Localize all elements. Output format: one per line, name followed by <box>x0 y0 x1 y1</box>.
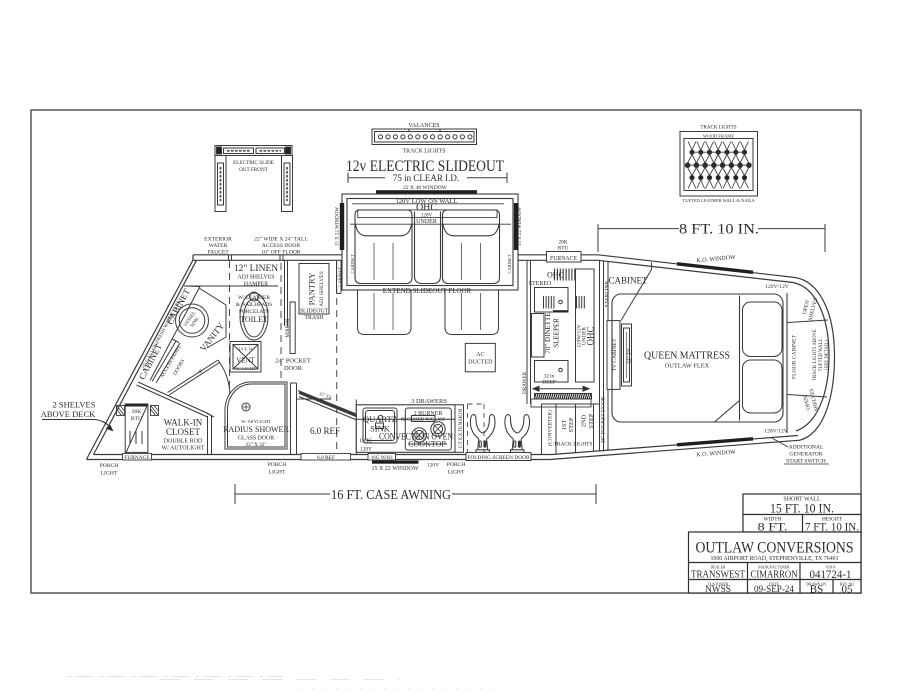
svg-text:TRACK LIGHTS ABOVE: TRACK LIGHTS ABOVE <box>813 329 818 381</box>
svg-text:VENT: VENT <box>236 357 255 365</box>
svg-text:FURNACE: FURNACE <box>124 455 150 461</box>
svg-text:GENERATOR: GENERATOR <box>789 452 822 458</box>
svg-text:BS: BS <box>810 584 823 596</box>
svg-text:FOLDING SCREEN DOOR: FOLDING SCREEN DOOR <box>467 455 530 461</box>
svg-text:TRACK LIGHTS: TRACK LIGHTS <box>701 126 737 131</box>
svg-text:FLOOR CABINET: FLOOR CABINET <box>792 334 798 379</box>
svg-text:22" WIDE X 24" TALL: 22" WIDE X 24" TALL <box>254 237 308 243</box>
svg-text:TOILET: TOILET <box>240 315 268 324</box>
svg-text:09-SEP-24: 09-SEP-24 <box>754 584 794 594</box>
svg-text:OUTLAW FLEX: OUTLAW FLEX <box>665 363 710 370</box>
svg-text:TUFTED WALL: TUFTED WALL <box>819 339 824 372</box>
svg-text:(6G W/H): (6G W/H) <box>371 454 392 461</box>
svg-text:12" LINEN: 12" LINEN <box>234 264 278 274</box>
svg-text:BTU: BTU <box>558 246 569 252</box>
svg-text:16 FT. CASE AWNING: 16 FT. CASE AWNING <box>331 487 451 502</box>
svg-text:120V/12V: 120V/12V <box>765 284 789 290</box>
svg-text:ADJ SHELVES: ADJ SHELVES <box>319 271 325 307</box>
svg-text:W/ LEATHER: W/ LEATHER <box>238 295 270 301</box>
svg-text:TRASH: TRASH <box>304 315 324 321</box>
svg-text:& NAILHEADS: & NAILHEADS <box>236 302 272 308</box>
svg-text:041724-1: 041724-1 <box>810 569 852 581</box>
svg-text:CT EXTENSION: CT EXTENSION <box>458 409 464 449</box>
svg-text:1000 AIRPORT ROAD, STEPHENVILL: 1000 AIRPORT ROAD, STEPHENVILLE, TX 7640… <box>711 555 839 562</box>
svg-text:RECESSED W/GLASS: RECESSED W/GLASS <box>401 416 446 421</box>
svg-text:26" POCKET DOOR: 26" POCKET DOOR <box>601 396 607 443</box>
svg-text:WATER: WATER <box>209 243 228 249</box>
svg-text:ADJ SHELVES: ADJ SHELVES <box>238 275 275 281</box>
svg-text:W/ SKYLIGHT: W/ SKYLIGHT <box>241 419 271 424</box>
svg-text:05: 05 <box>842 584 854 596</box>
svg-text:6.0 REF: 6.0 REF <box>317 455 335 461</box>
svg-text:120V: 120V <box>360 447 372 453</box>
svg-text:20K: 20K <box>132 409 142 415</box>
svg-text:PORCH: PORCH <box>268 462 287 468</box>
svg-text:OUT FRONT: OUT FRONT <box>239 167 269 173</box>
svg-text:DOOR: DOOR <box>284 365 303 372</box>
svg-text:STEREO: STEREO <box>529 281 552 287</box>
svg-text:2 SHELVES: 2 SHELVES <box>53 400 96 410</box>
svg-text:WALK-IN: WALK-IN <box>164 418 203 428</box>
svg-text:TV CABINET: TV CABINET <box>612 338 618 372</box>
svg-text:120V: 120V <box>421 213 433 219</box>
svg-text:DOUBLE ROD: DOUBLE ROD <box>164 439 203 445</box>
svg-text:TRACK LIGHTS: TRACK LIGHTS <box>402 149 445 155</box>
svg-text:10" OFF FLOOR: 10" OFF FLOOR <box>261 250 301 256</box>
svg-text:CABINET: CABINET <box>507 254 512 273</box>
svg-text:ACCESS DOOR: ACCESS DOOR <box>262 243 301 249</box>
svg-text:PORCH: PORCH <box>100 463 119 469</box>
svg-text:120V: 120V <box>427 463 439 469</box>
svg-text:MIRROR: MIRROR <box>286 318 291 338</box>
svg-text:DEEP: DEEP <box>542 380 555 386</box>
svg-text:FAUCET: FAUCET <box>207 250 229 256</box>
svg-text:RADIUS SHOWER: RADIUS SHOWER <box>223 425 289 434</box>
svg-text:ADDITIONAL: ADDITIONAL <box>789 445 824 451</box>
svg-text:75 in CLEAR I.D.: 75 in CLEAR I.D. <box>393 173 459 183</box>
svg-text:CABINET: CABINET <box>609 276 648 286</box>
svg-text:VALANCES: VALANCES <box>408 123 439 129</box>
svg-text:70" DINETTE: 70" DINETTE <box>544 312 552 353</box>
svg-text:GLASS DOOR: GLASS DOOR <box>238 436 274 442</box>
svg-text:OHC: OHC <box>547 271 564 280</box>
svg-text:HAMPER: HAMPER <box>244 282 268 288</box>
svg-text:LIGHT: LIGHT <box>101 471 118 477</box>
svg-text:WOOD FRAME: WOOD FRAME <box>703 134 734 139</box>
svg-text:PORCH: PORCH <box>447 462 466 468</box>
svg-text:8 FT. 10 IN.: 8 FT. 10 IN. <box>679 222 759 238</box>
svg-text:W/ LIGHT: W/ LIGHT <box>235 366 256 371</box>
svg-text:24" POCKET: 24" POCKET <box>275 358 311 365</box>
svg-text:(SEE DETAIL): (SEE DETAIL) <box>825 340 830 370</box>
svg-text:DRAWER: DRAWER <box>522 371 528 394</box>
svg-text:PANTRY: PANTRY <box>307 273 317 306</box>
svg-text:32" TV: 32" TV <box>627 348 633 364</box>
svg-text:15 X 22 WINDOW: 15 X 22 WINDOW <box>518 207 523 246</box>
svg-text:CABINET: CABINET <box>350 254 355 273</box>
svg-text:STEP: STEP <box>568 417 575 432</box>
svg-text:OHC: OHC <box>360 439 372 445</box>
svg-text:W/ AUTOLIGHT: W/ AUTOLIGHT <box>161 446 204 452</box>
svg-text:LIGHT: LIGHT <box>269 470 286 476</box>
svg-text:ELECTRIC SLIDE: ELECTRIC SLIDE <box>233 160 274 166</box>
svg-text:TRACK LIGHTS: TRACK LIGHTS <box>554 442 593 448</box>
svg-text:6.0 REF: 6.0 REF <box>310 426 340 436</box>
svg-text:NWSS: NWSS <box>705 584 731 594</box>
svg-text:22 X 48 WINDOW: 22 X 48 WINDOW <box>403 185 448 191</box>
svg-text:ABOVE DECK: ABOVE DECK <box>41 409 96 419</box>
svg-text:CLOSET: CLOSET <box>166 427 201 437</box>
svg-text:CIMARRON: CIMARRON <box>751 570 798 581</box>
svg-text:LIGHT: LIGHT <box>448 470 465 476</box>
svg-text:TRANSWEST: TRANSWEST <box>691 570 745 581</box>
svg-text:OUTLAW CONVERSIONS: OUTLAW CONVERSIONS <box>696 540 854 557</box>
svg-text:EXTERIOR: EXTERIOR <box>204 237 232 243</box>
svg-text:QUEEN MATTRESS: QUEEN MATTRESS <box>644 351 730 362</box>
svg-text:AC: AC <box>476 352 484 358</box>
svg-text:15 FT. 10 IN.: 15 FT. 10 IN. <box>770 501 834 516</box>
svg-text:15 X 22 WINDOW: 15 X 22 WINDOW <box>371 466 418 472</box>
svg-text:3 DRAWERS: 3 DRAWERS <box>411 398 447 405</box>
svg-text:FURNACE: FURNACE <box>550 256 578 262</box>
svg-text:120V/12V: 120V/12V <box>764 429 788 435</box>
svg-text:BTU: BTU <box>131 416 142 422</box>
svg-text:14 X 14: 14 X 14 <box>238 347 253 352</box>
svg-text:EXTEND SLIDEOUT FLOOR: EXTEND SLIDEOUT FLOOR <box>383 287 472 295</box>
svg-text:DUCTED: DUCTED <box>468 360 493 366</box>
svg-text:(CONVERTER): (CONVERTER) <box>547 410 554 446</box>
svg-text:TUFTED LEATHER WALL & NAILS: TUFTED LEATHER WALL & NAILS <box>682 198 755 203</box>
svg-text:1ST: 1ST <box>561 420 568 431</box>
svg-text:OHC: OHC <box>586 326 596 345</box>
svg-text:32" X 32": 32" X 32" <box>246 442 267 448</box>
svg-text:2ND: 2ND <box>581 414 588 427</box>
svg-text:SLEEPER: SLEEPER <box>553 318 561 348</box>
svg-text:STEP: STEP <box>588 413 595 428</box>
svg-text:SLIDEOUT: SLIDEOUT <box>300 309 329 315</box>
svg-text:15 X 22 WINDOW: 15 X 22 WINDOW <box>336 207 341 246</box>
